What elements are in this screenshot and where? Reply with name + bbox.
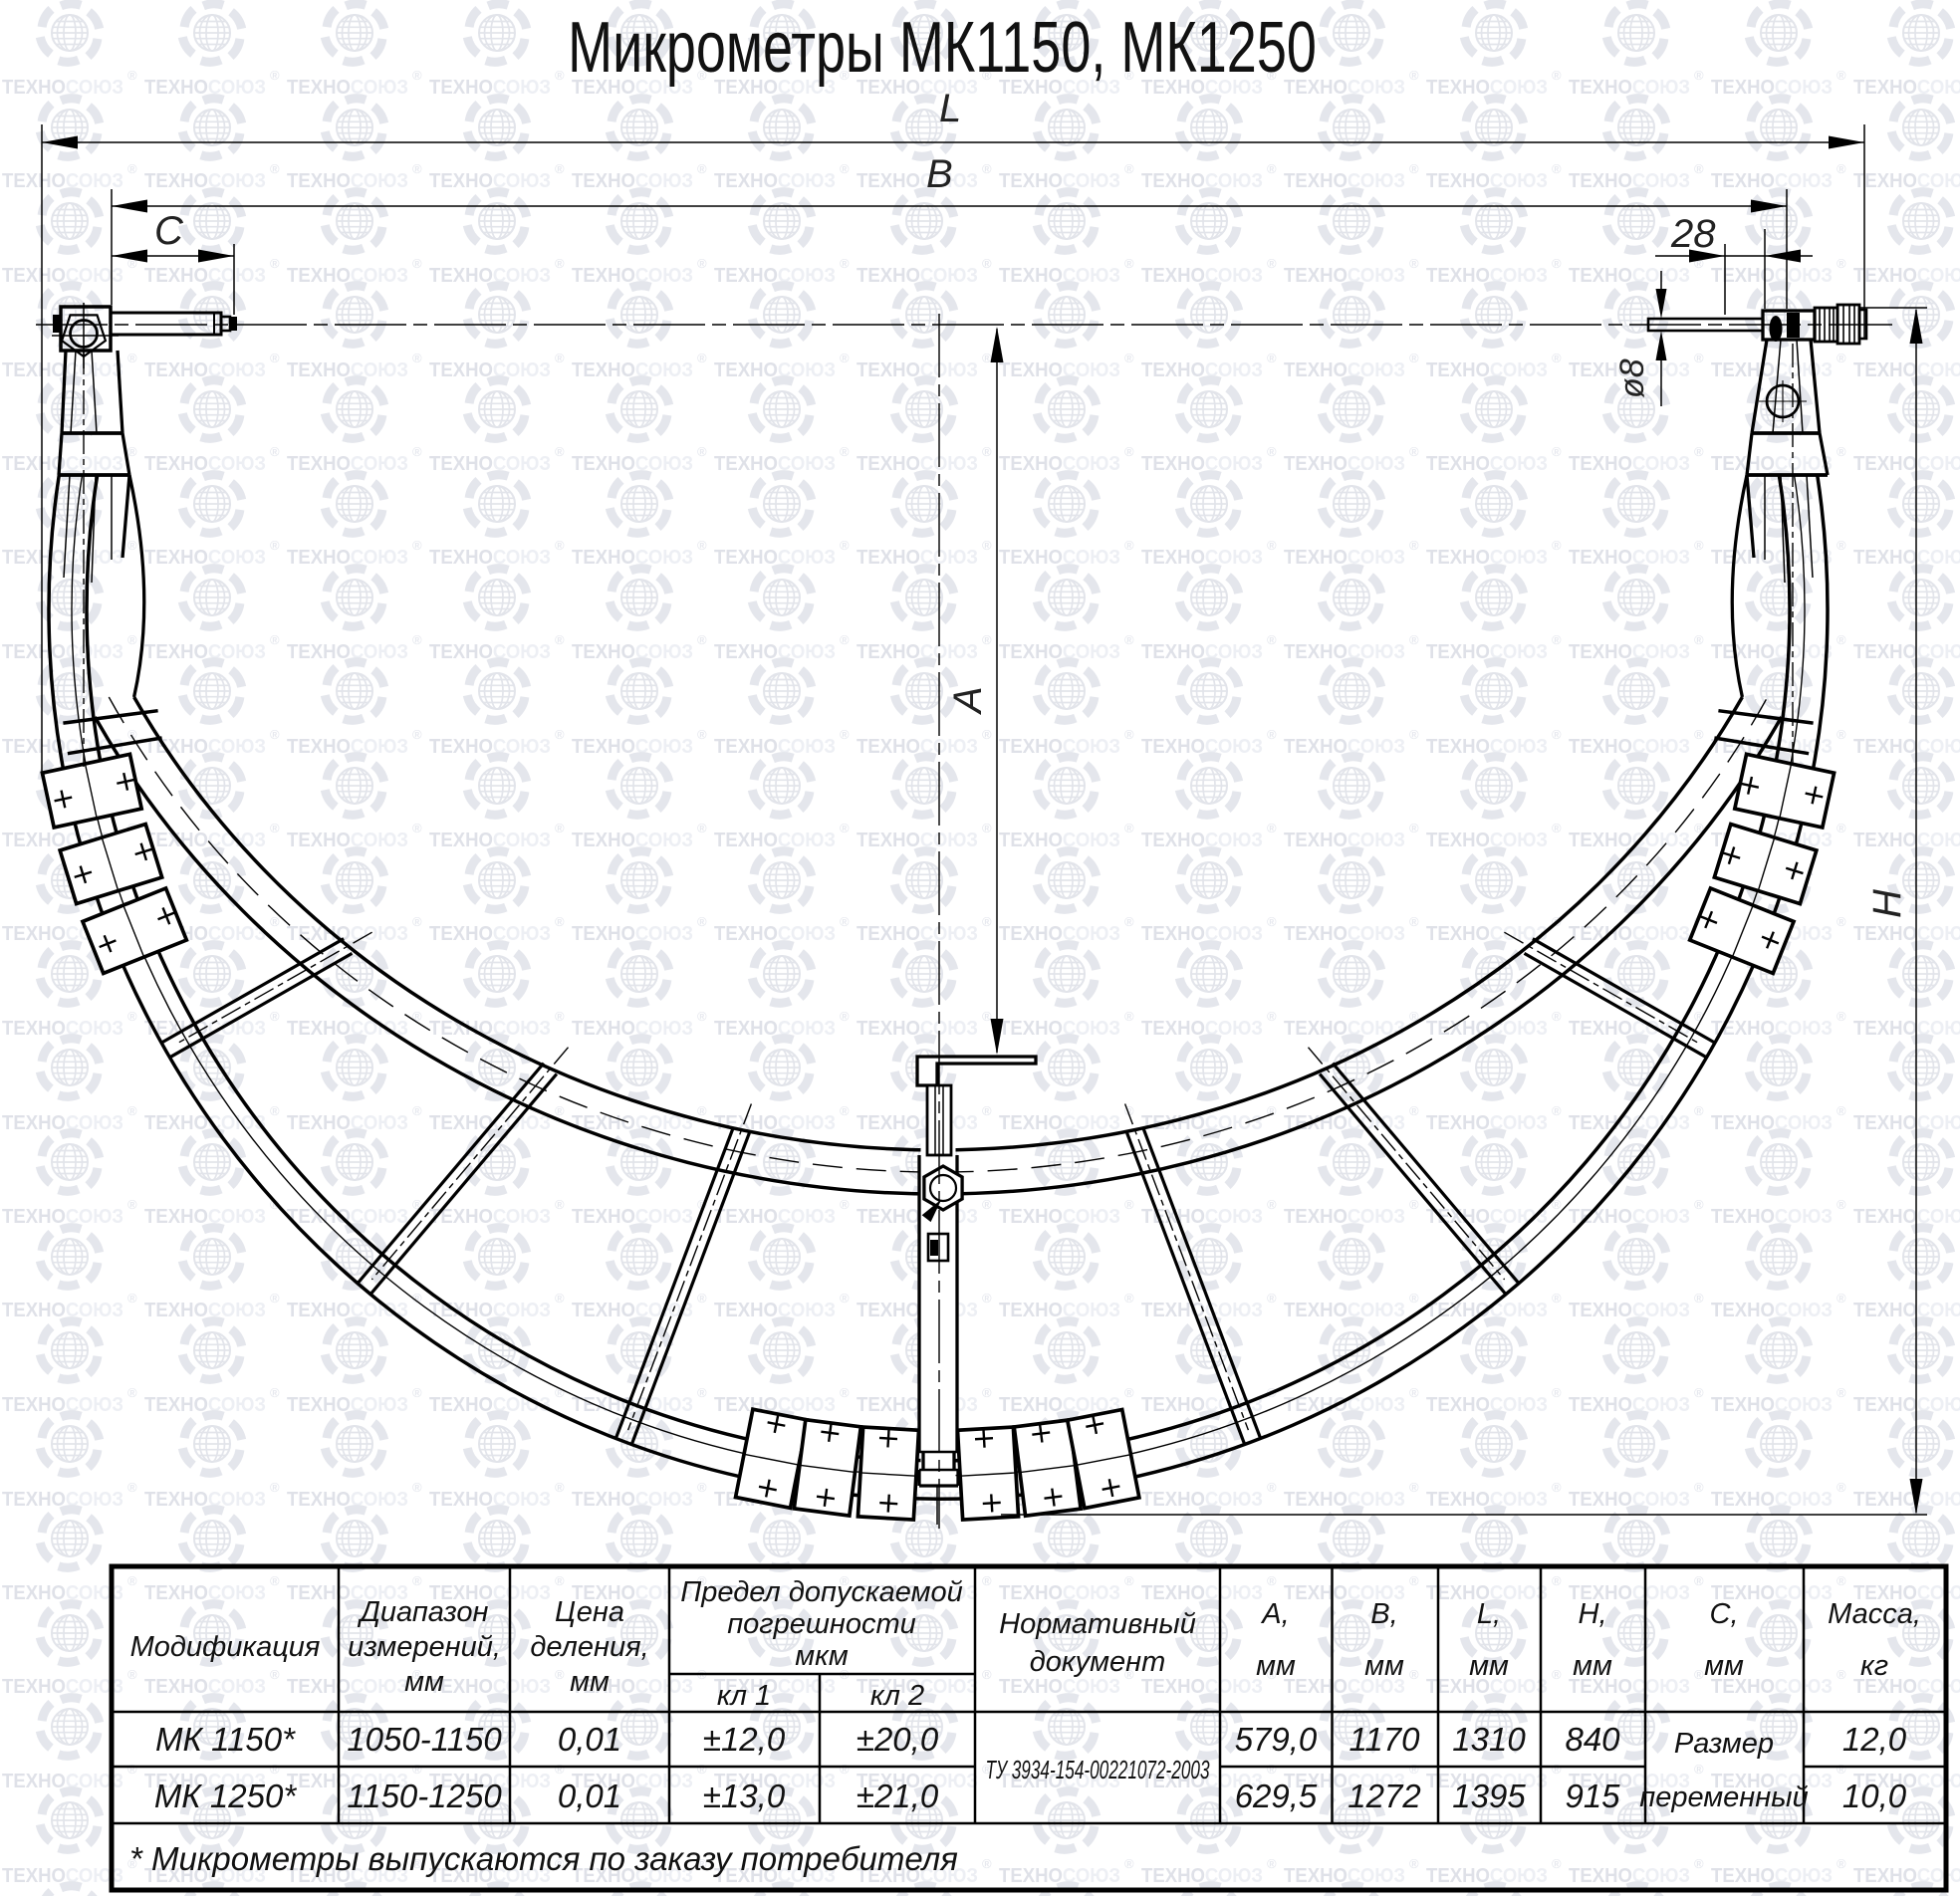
svg-text:кг: кг bbox=[1860, 1650, 1888, 1682]
svg-text:погрешности: погрешности bbox=[727, 1608, 916, 1640]
svg-text:±21,0: ±21,0 bbox=[857, 1778, 939, 1814]
svg-text:кл 1: кл 1 bbox=[717, 1680, 771, 1712]
svg-text:ø8: ø8 bbox=[1613, 358, 1651, 398]
svg-text:840: 840 bbox=[1565, 1721, 1620, 1758]
svg-text:мм: мм bbox=[1573, 1650, 1612, 1682]
svg-text:0,01: 0,01 bbox=[558, 1778, 621, 1814]
svg-text:Предел допускаемой: Предел допускаемой bbox=[680, 1576, 962, 1608]
svg-text:H: H bbox=[1865, 889, 1909, 918]
svg-text:L,: L, bbox=[1477, 1598, 1501, 1630]
svg-text:1050-1150: 1050-1150 bbox=[347, 1721, 502, 1758]
svg-text:1150-1250: 1150-1250 bbox=[347, 1778, 502, 1814]
svg-text:Н,: Н, bbox=[1579, 1598, 1607, 1630]
svg-text:Нормативный: Нормативный bbox=[999, 1608, 1196, 1640]
svg-text:переменный: переменный bbox=[1639, 1782, 1808, 1813]
svg-text:12,0: 12,0 bbox=[1842, 1721, 1907, 1758]
svg-text:мм: мм bbox=[570, 1666, 610, 1698]
svg-text:±12,0: ±12,0 bbox=[703, 1721, 786, 1758]
svg-text:L: L bbox=[939, 87, 961, 130]
svg-text:1310: 1310 bbox=[1452, 1721, 1526, 1758]
svg-text:мм: мм bbox=[1364, 1650, 1404, 1682]
svg-text:* Микрометры выпускаются по за: * Микрометры выпускаются по заказу потре… bbox=[129, 1840, 958, 1877]
svg-text:1395: 1395 bbox=[1452, 1778, 1526, 1814]
svg-text:Модификация: Модификация bbox=[130, 1631, 321, 1663]
svg-text:915: 915 bbox=[1565, 1778, 1620, 1814]
svg-text:А,: А, bbox=[1260, 1598, 1289, 1630]
svg-text:579,0: 579,0 bbox=[1235, 1721, 1318, 1758]
svg-text:±20,0: ±20,0 bbox=[857, 1721, 939, 1758]
svg-text:Цена: Цена bbox=[555, 1596, 624, 1628]
svg-text:Диапазон: Диапазон bbox=[357, 1596, 488, 1628]
svg-text:629,5: 629,5 bbox=[1235, 1778, 1318, 1814]
svg-text:C: C bbox=[154, 209, 184, 253]
svg-text:Масса,: Масса, bbox=[1828, 1598, 1921, 1630]
svg-text:10,0: 10,0 bbox=[1842, 1778, 1907, 1814]
svg-text:B: B bbox=[926, 152, 953, 196]
svg-text:1272: 1272 bbox=[1347, 1778, 1420, 1814]
svg-text:мм: мм bbox=[1469, 1650, 1509, 1682]
svg-text:мм: мм bbox=[404, 1666, 444, 1698]
svg-text:A: A bbox=[946, 686, 990, 715]
svg-text:1170: 1170 bbox=[1349, 1721, 1421, 1758]
svg-text:кл 2: кл 2 bbox=[870, 1680, 924, 1712]
svg-text:В,: В, bbox=[1370, 1598, 1397, 1630]
svg-text:деления,: деления, bbox=[530, 1631, 648, 1663]
svg-text:ТУ 3934-154-00221072-2003: ТУ 3934-154-00221072-2003 bbox=[986, 1755, 1210, 1784]
svg-text:0,01: 0,01 bbox=[558, 1721, 621, 1758]
svg-text:Размер: Размер bbox=[1674, 1728, 1774, 1760]
svg-text:мкм: мкм bbox=[795, 1640, 849, 1672]
svg-text:документ: документ bbox=[1030, 1646, 1165, 1678]
svg-text:мм: мм bbox=[1256, 1650, 1296, 1682]
svg-text:измерений,: измерений, bbox=[348, 1631, 501, 1663]
svg-text:мм: мм bbox=[1704, 1650, 1744, 1682]
svg-text:МК 1250*: МК 1250* bbox=[154, 1778, 298, 1814]
svg-text:МК 1150*: МК 1150* bbox=[155, 1721, 296, 1758]
svg-text:С,: С, bbox=[1710, 1598, 1739, 1630]
svg-text:28: 28 bbox=[1670, 212, 1716, 256]
svg-text:±13,0: ±13,0 bbox=[703, 1778, 786, 1814]
svg-text:Микрометры МК1150, МК1250: Микрометры МК1150, МК1250 bbox=[568, 8, 1317, 88]
